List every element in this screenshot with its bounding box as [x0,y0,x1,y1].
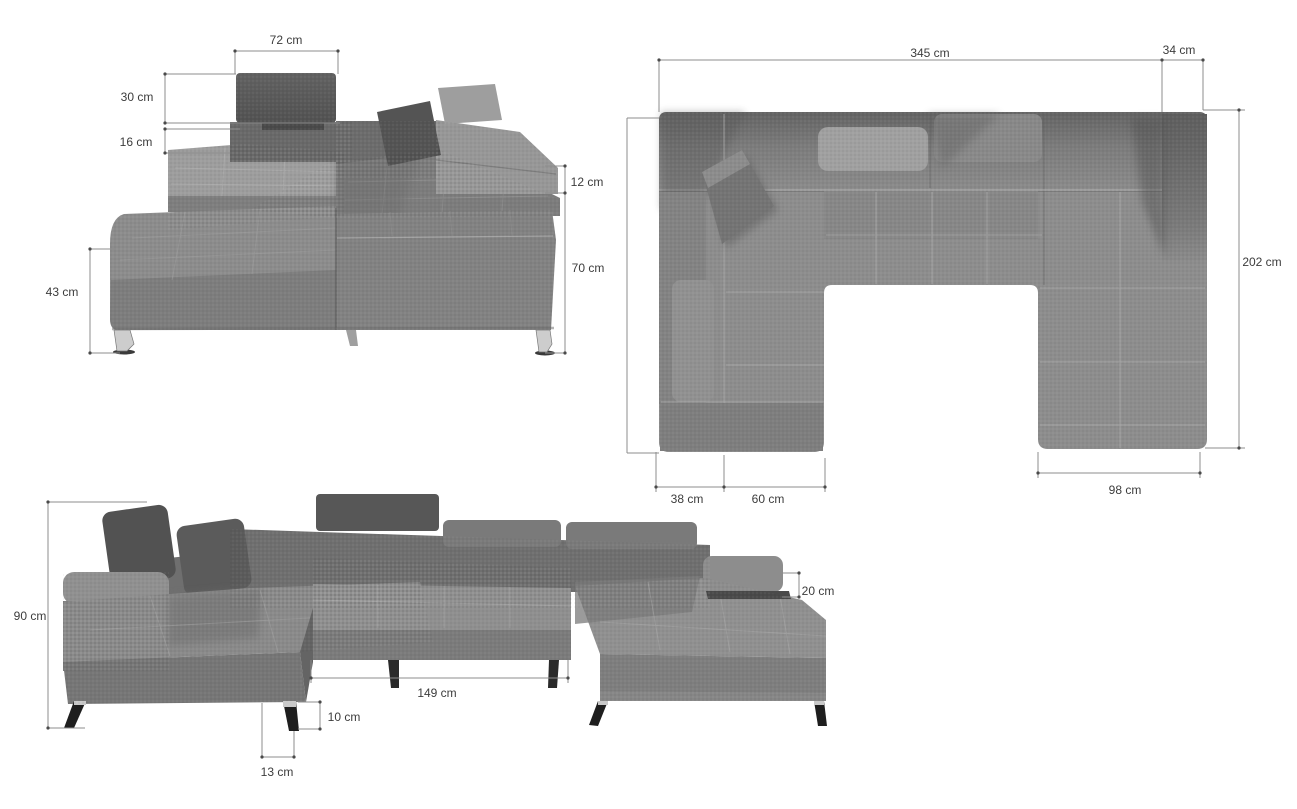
svg-text:90 cm: 90 cm [14,609,47,623]
svg-text:16 cm: 16 cm [120,135,153,149]
svg-text:345 cm: 345 cm [910,46,949,60]
svg-text:149 cm: 149 cm [417,686,456,700]
svg-text:72 cm: 72 cm [270,33,303,47]
svg-text:43 cm: 43 cm [46,285,79,299]
svg-text:12 cm: 12 cm [571,175,604,189]
svg-text:98 cm: 98 cm [1109,483,1142,497]
svg-text:30 cm: 30 cm [121,90,154,104]
svg-text:10 cm: 10 cm [328,710,361,724]
svg-text:60 cm: 60 cm [752,492,785,506]
svg-text:34 cm: 34 cm [1163,43,1196,57]
svg-text:202 cm: 202 cm [1242,255,1281,269]
svg-text:13 cm: 13 cm [261,765,294,779]
svg-text:70 cm: 70 cm [572,261,605,275]
svg-text:20 cm: 20 cm [802,584,835,598]
svg-text:38 cm: 38 cm [671,492,704,506]
